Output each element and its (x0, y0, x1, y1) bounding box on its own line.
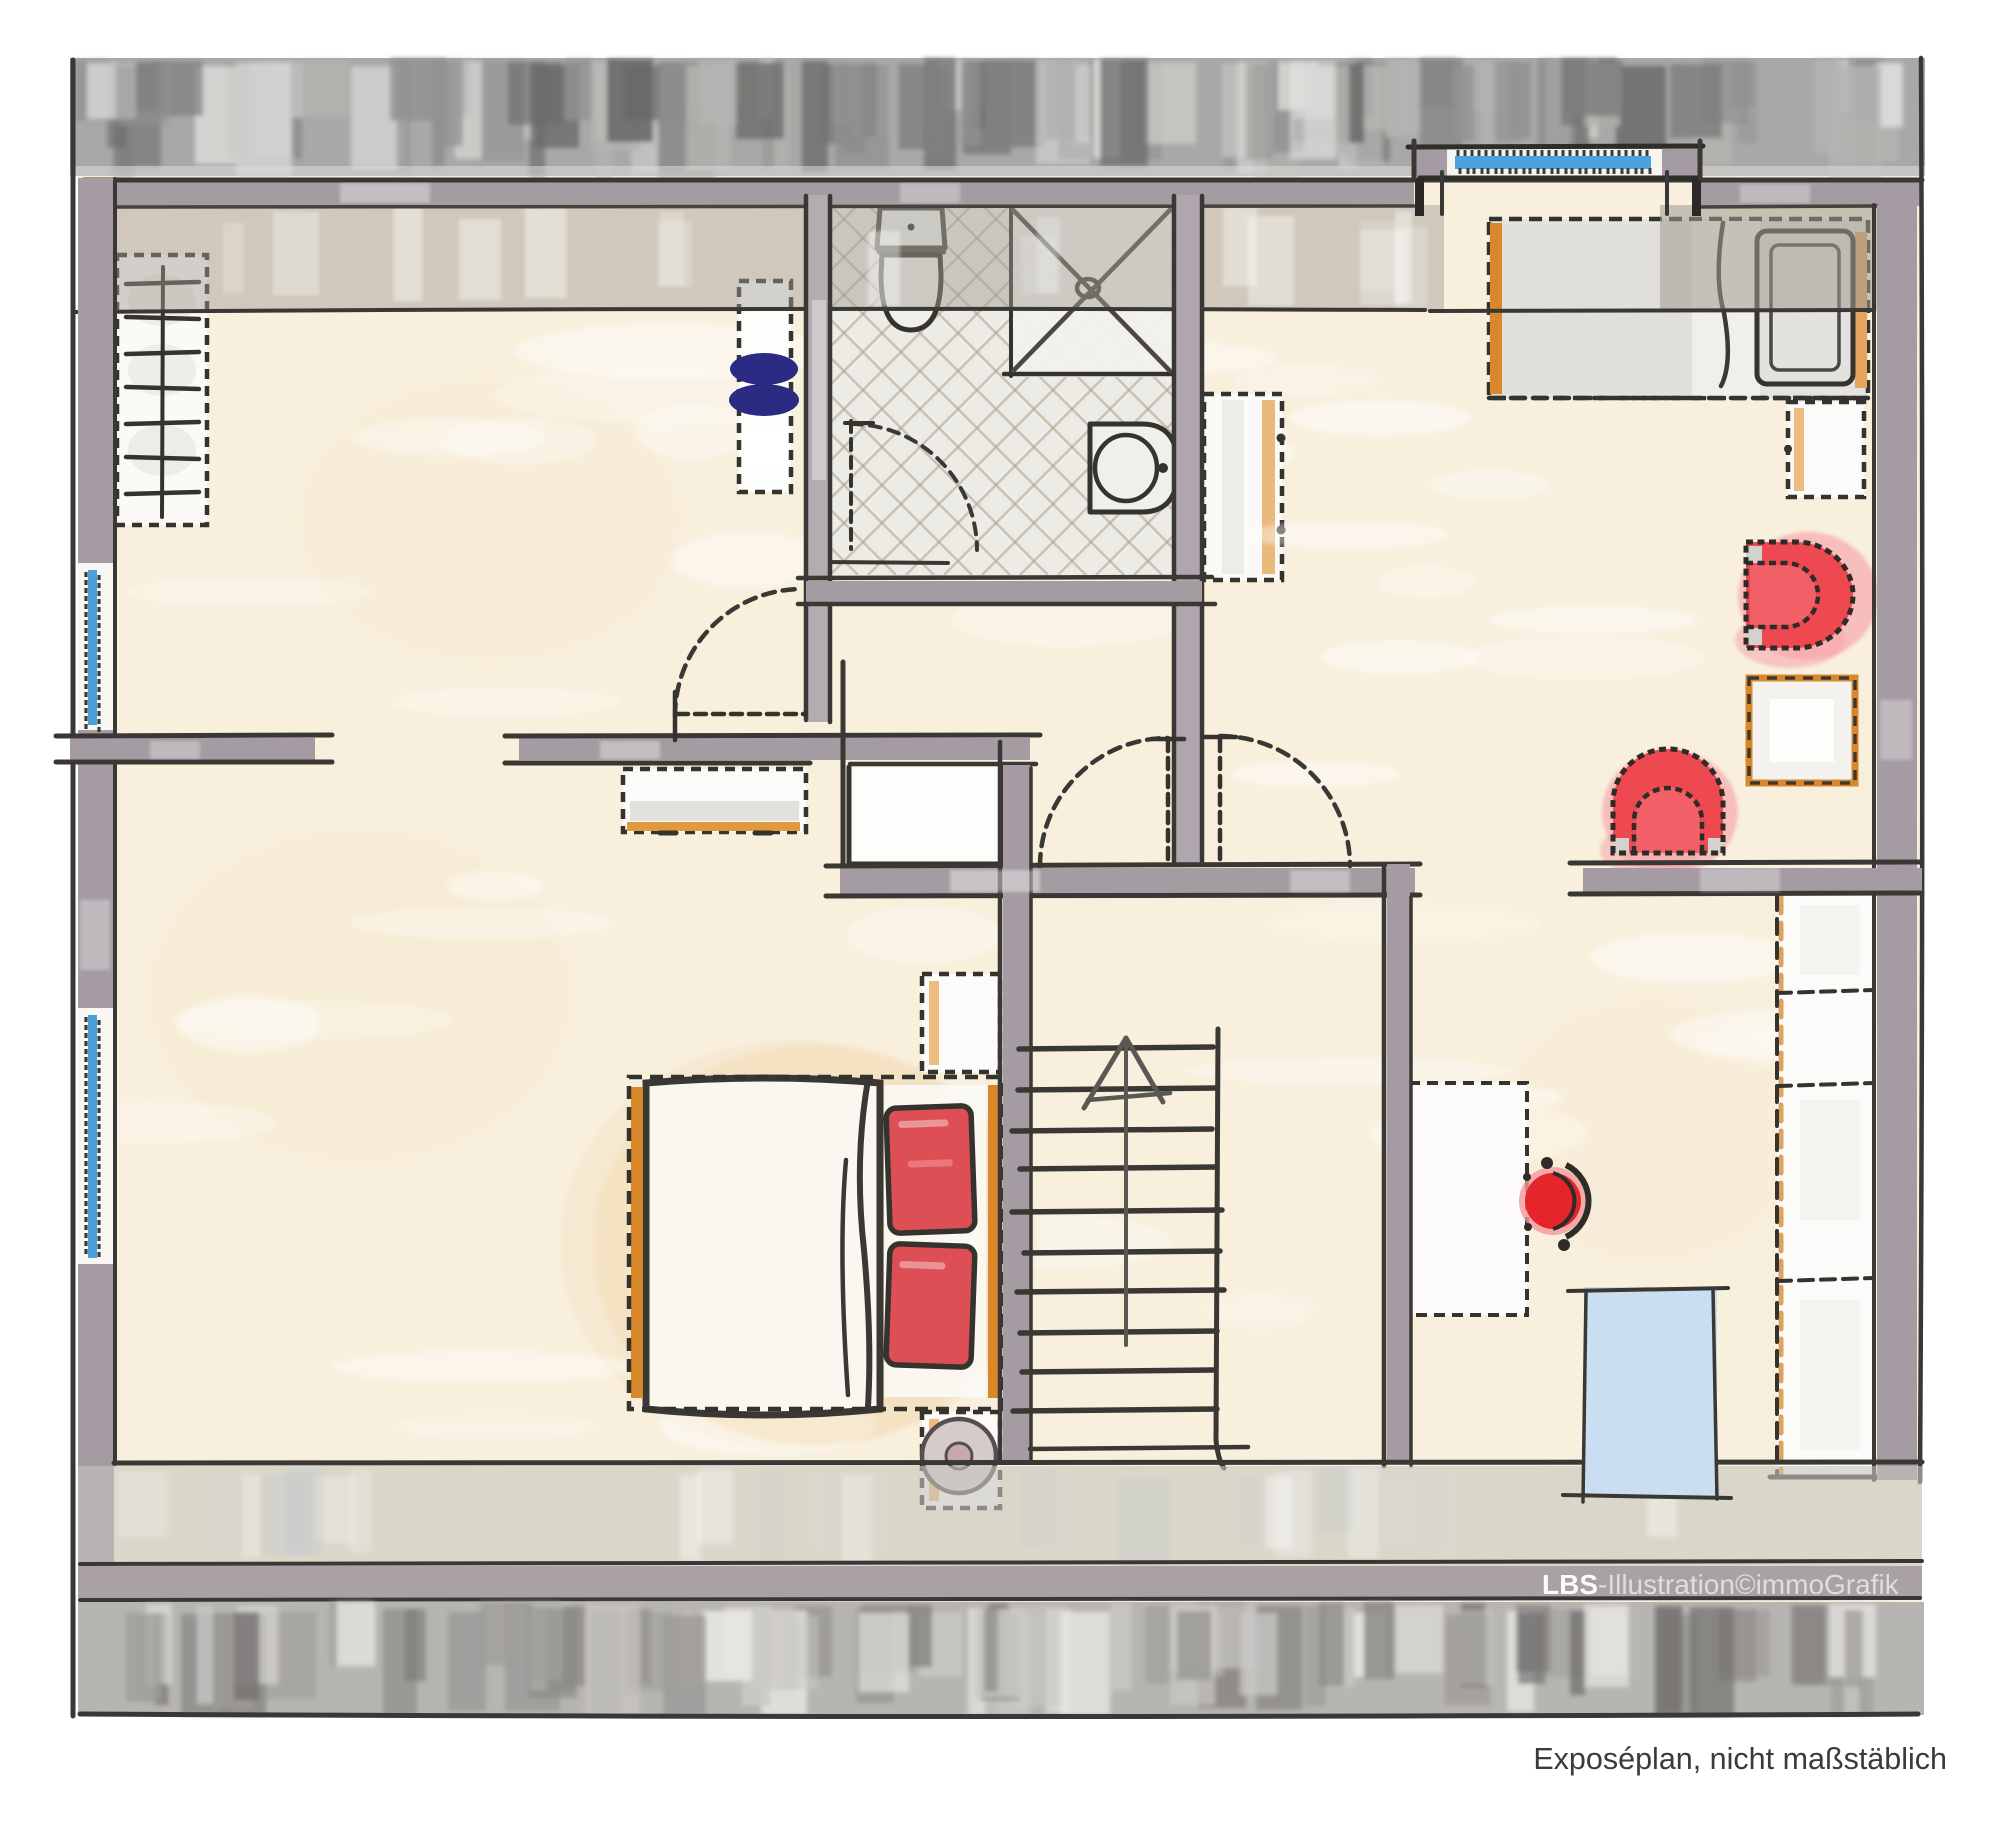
svg-text:Exposéplan, nicht maßstäblich: Exposéplan, nicht maßstäblich (1533, 1742, 1947, 1776)
svg-text:LBS-Illustration©immoGrafik: LBS-Illustration©immoGrafik (1542, 1569, 1900, 1600)
